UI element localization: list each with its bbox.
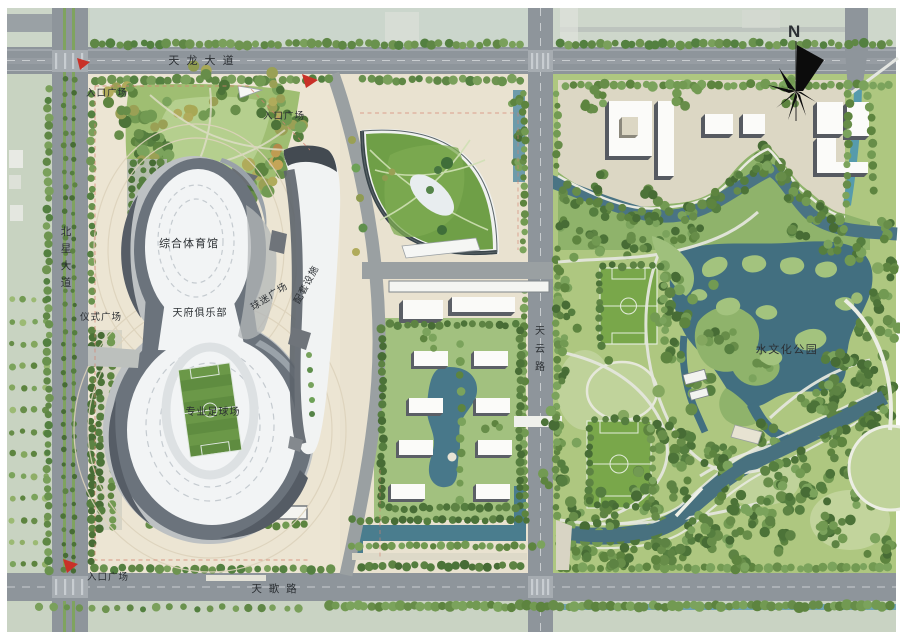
svg-text:N: N (788, 22, 800, 41)
svg-text:天云路: 天云路 (535, 326, 545, 373)
svg-text:入口广场: 入口广场 (86, 87, 128, 99)
svg-text:天府俱乐部: 天府俱乐部 (173, 306, 228, 319)
svg-text:仪式广场: 仪式广场 (80, 311, 122, 323)
svg-text:入口广场: 入口广场 (263, 110, 305, 122)
svg-text:天 龙 大 道: 天 龙 大 道 (168, 53, 235, 67)
svg-text:水文化公园: 水文化公园 (756, 342, 819, 356)
svg-text:专业足球场: 专业足球场 (186, 405, 241, 418)
svg-text:综合体育馆: 综合体育馆 (159, 236, 219, 250)
svg-text:天 歌 路: 天 歌 路 (251, 582, 298, 595)
svg-text:入口广场: 入口广场 (87, 571, 129, 583)
